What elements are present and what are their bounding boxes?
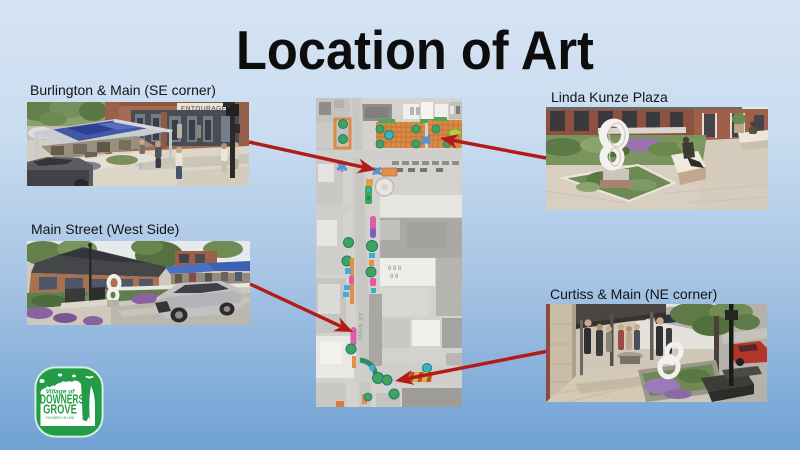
svg-text:GROVE: GROVE [43,403,77,417]
svg-text:FOUNDED IN 1832: FOUNDED IN 1832 [46,416,75,420]
